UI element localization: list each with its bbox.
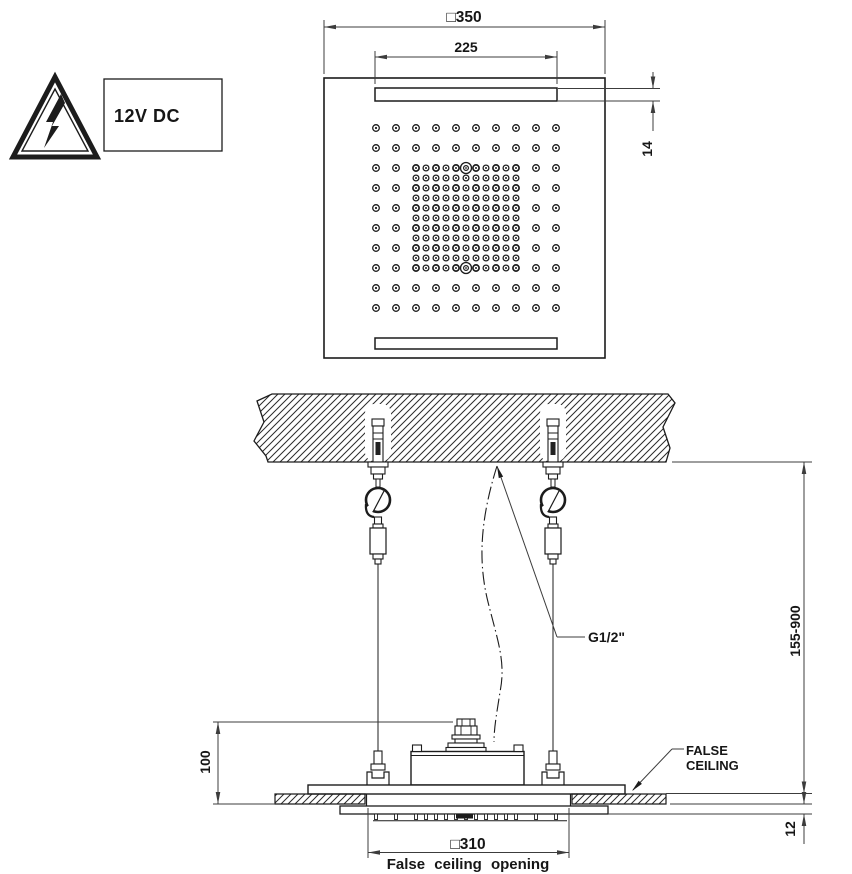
- high-voltage-triangle-icon: [13, 77, 97, 157]
- voltage-label: 12V DC: [114, 106, 180, 126]
- installation-side-view: G1/2" FALSE CEILING 155-900 100 12 □310 …: [197, 394, 812, 873]
- technical-drawing-page: 12V DC □350 225 14 G1/2" FALSE CEILING 1…: [0, 0, 852, 874]
- dim-inner-width-label: 225: [454, 39, 478, 55]
- hanger-assembly: [366, 419, 390, 785]
- dim-protrusion-label: 12: [782, 821, 798, 837]
- false-ceiling-label-line1: FALSE: [686, 743, 728, 758]
- structural-ceiling: [254, 394, 675, 462]
- opening-caption: False ceiling opening: [387, 856, 550, 873]
- connection-thread-label: G1/2": [588, 629, 625, 645]
- dim-overall-width-label: □350: [446, 9, 481, 26]
- electrical-warning-sign: 12V DC: [13, 77, 222, 157]
- shower-head-top-view: □350 225 14: [324, 9, 660, 358]
- dim-slot-height-label: 14: [639, 141, 655, 157]
- flexible-hose-centerline: [482, 466, 585, 742]
- dim-height-range-label: 155-900: [787, 605, 803, 657]
- false-ceiling-label-line2: CEILING: [686, 758, 739, 773]
- shower-head-side: [308, 719, 625, 821]
- dim-head-height-label: 100: [197, 750, 213, 774]
- dim-opening-width-label: □310: [450, 836, 485, 853]
- shower-installation-drawing: 12V DC □350 225 14 G1/2" FALSE CEILING 1…: [0, 0, 852, 874]
